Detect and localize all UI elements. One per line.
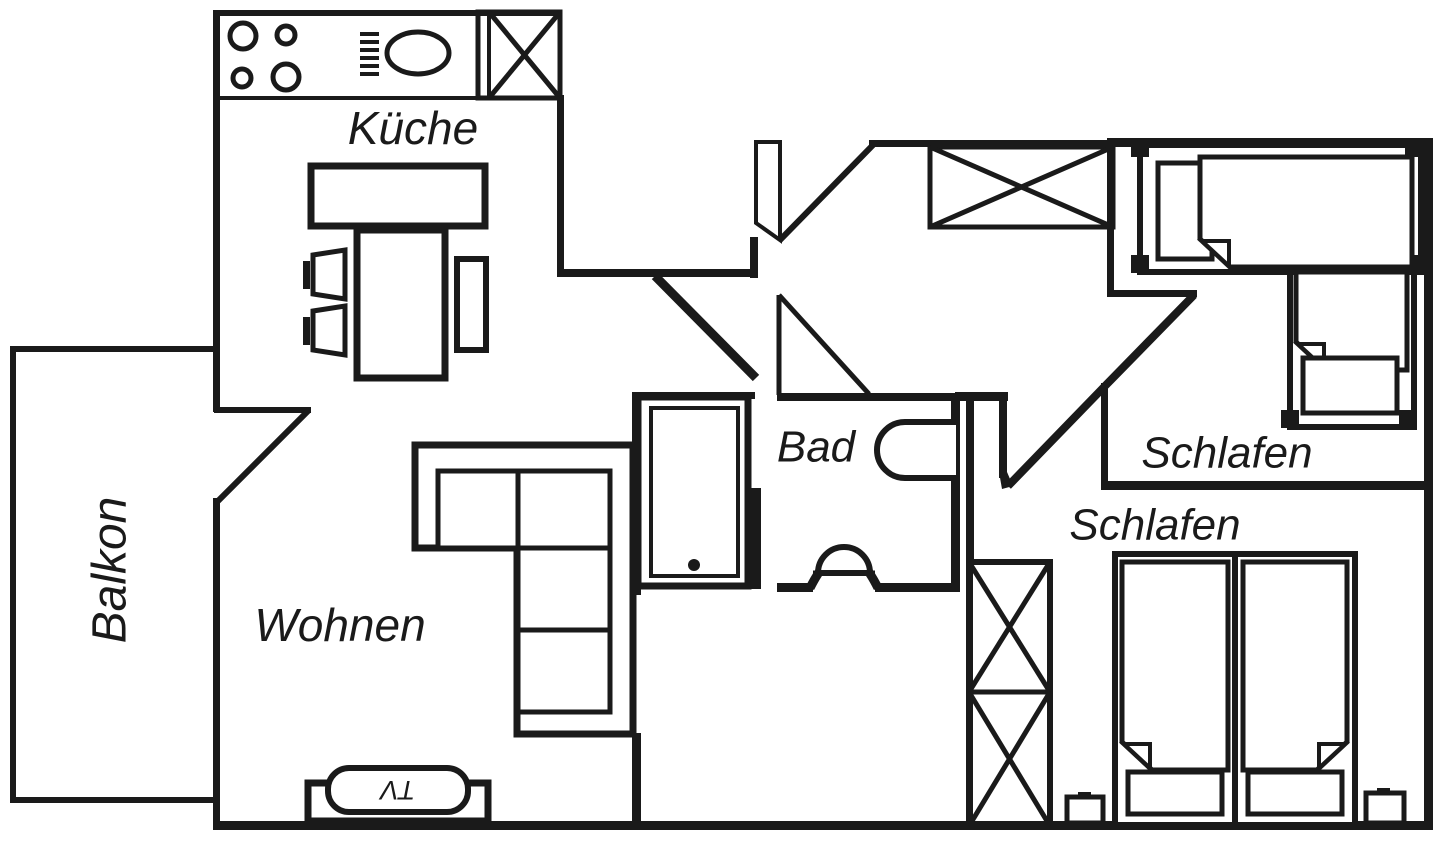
burner-small-2 bbox=[233, 69, 251, 87]
dining-table bbox=[357, 230, 445, 378]
bedroom-bottom-furniture bbox=[969, 554, 1404, 826]
wall-entrance-stub bbox=[750, 237, 758, 278]
bed-a bbox=[1115, 554, 1235, 825]
sink-basin bbox=[387, 32, 449, 74]
sink-icon bbox=[360, 32, 449, 76]
wall-bedroom-right-west-lower bbox=[1101, 383, 1108, 488]
nightstand bbox=[1067, 792, 1103, 823]
wall-kitchen-east bbox=[557, 95, 564, 276]
bed-footboard bbox=[1128, 772, 1222, 814]
wall-shower-divider bbox=[751, 488, 761, 589]
kitchen-fixtures bbox=[230, 12, 560, 378]
label-bedroom-right: Schlafen bbox=[1141, 429, 1312, 478]
balcony-bottom-edge bbox=[10, 797, 215, 803]
washbasin bbox=[813, 547, 875, 573]
bed-footboard bbox=[1248, 772, 1342, 814]
bath-door-leaf bbox=[779, 295, 869, 395]
label-balcony: Balkon bbox=[84, 497, 137, 644]
bedroom-right-furniture bbox=[1131, 139, 1423, 428]
bed-mattress bbox=[1200, 157, 1412, 267]
chair bbox=[303, 250, 345, 299]
toilet bbox=[877, 422, 956, 478]
bed-mattress bbox=[1122, 562, 1228, 770]
wall-bedroom-bottom-top bbox=[1101, 481, 1433, 490]
bed-horizontal bbox=[1131, 139, 1423, 273]
hall-closet-symbol bbox=[930, 147, 1113, 227]
sofa bbox=[415, 445, 633, 734]
floor-plan: TV bbox=[0, 0, 1440, 842]
bed-b bbox=[1235, 554, 1355, 825]
stove-icon bbox=[230, 23, 299, 90]
label-kitchen: Küche bbox=[348, 102, 478, 154]
label-bedroom-bottom: Schlafen bbox=[1069, 501, 1240, 550]
wall-living-east-lower bbox=[632, 733, 641, 828]
sofa-cushions bbox=[438, 471, 610, 712]
wall-diagonal-bedroom-right bbox=[1105, 295, 1194, 386]
wall-duct-left bbox=[966, 392, 974, 564]
balcony-outline bbox=[10, 346, 311, 803]
kitchen-sideboard bbox=[311, 166, 485, 226]
entrance-door-leaf bbox=[756, 142, 780, 240]
dining-bench bbox=[457, 259, 486, 350]
hall bbox=[756, 142, 1113, 240]
kitchen-closet-symbol bbox=[478, 12, 560, 98]
shower bbox=[638, 397, 748, 586]
bed-mattress bbox=[1243, 562, 1347, 770]
burner-small-1 bbox=[277, 26, 295, 44]
bedroom-wardrobe-symbol bbox=[969, 562, 1050, 826]
tv-label: TV bbox=[378, 775, 415, 805]
wall-west-lower bbox=[213, 498, 220, 830]
wall-diagonal-nw bbox=[655, 276, 756, 378]
floor-plan-svg: TV bbox=[0, 0, 1440, 842]
burner-large-2 bbox=[273, 64, 299, 90]
burner-large-1 bbox=[230, 23, 256, 49]
label-bathroom: Bad bbox=[777, 423, 857, 472]
balcony-door-leaf bbox=[218, 410, 309, 501]
bed-vertical bbox=[1281, 272, 1417, 428]
label-living-room: Wohnen bbox=[254, 599, 425, 651]
balcony-left-edge bbox=[10, 346, 16, 803]
wall-jog bbox=[1107, 290, 1197, 297]
chair bbox=[303, 306, 345, 355]
shower-drain bbox=[688, 559, 700, 571]
balcony-top-edge bbox=[10, 346, 215, 352]
bed-footboard bbox=[1303, 358, 1397, 413]
wall-duct-right bbox=[999, 392, 1007, 478]
wall-diagonal-entrance bbox=[779, 145, 873, 241]
wall-diagonal-bedroom-bottom bbox=[1008, 387, 1104, 486]
nightstand bbox=[1366, 788, 1404, 823]
wall-bath-bottom-right bbox=[875, 583, 960, 592]
